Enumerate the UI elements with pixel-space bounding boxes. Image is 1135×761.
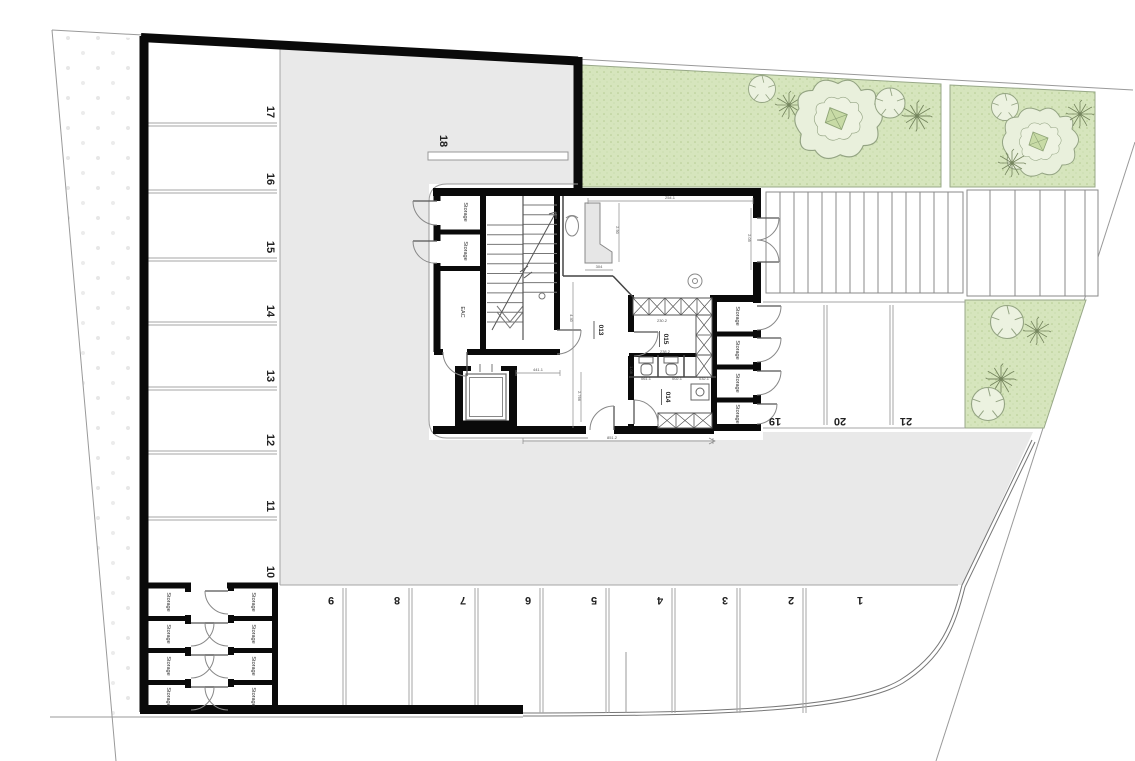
- dim-label: 2.90: [615, 226, 620, 235]
- sink: [691, 384, 709, 400]
- parking-space-number: 1: [857, 594, 863, 606]
- dim-label: 061.1: [641, 376, 652, 381]
- parking-space-number: 6: [525, 594, 531, 606]
- tree-icon: [972, 388, 1005, 421]
- dim-label: 2.05: [747, 234, 752, 243]
- storage-label: Storage: [250, 656, 256, 675]
- room-label-013: 013: [597, 325, 604, 336]
- parking-space-number: 7: [460, 594, 466, 606]
- dim-label: 032.1: [699, 376, 710, 381]
- stall-divider-lines-bottom: [280, 585, 958, 713]
- dim-label: 230.2: [657, 318, 668, 323]
- storage-block-walls: [145, 583, 278, 712]
- tree-icon: [875, 88, 905, 118]
- storage-label: Storage: [165, 656, 171, 675]
- parking-space-number: 20: [834, 415, 846, 427]
- dim-label: 441.1: [533, 367, 544, 372]
- storage-label: Storage: [734, 306, 740, 325]
- storage-label: Storage: [462, 202, 468, 221]
- parking-numbers-right: 19 20 21: [769, 415, 912, 427]
- room-label-eac: EAC: [459, 306, 465, 317]
- tree-icon: [749, 76, 776, 103]
- storage-label: Storage: [734, 373, 740, 392]
- parking-space-number: 17: [264, 106, 276, 118]
- stall-divider-lines-right: [763, 302, 965, 428]
- parking-space-number: 9: [328, 594, 334, 606]
- room-label-015: 015: [662, 334, 669, 345]
- dim-label: 2.766: [577, 391, 582, 402]
- parking-space-number: 3: [722, 594, 728, 606]
- dim-label: 1.08: [629, 366, 634, 375]
- dim-label: 238.2: [660, 349, 671, 354]
- room-label-014: 014: [664, 392, 671, 403]
- storage-label: Storage: [250, 592, 256, 611]
- parking-space-number: 10: [264, 566, 276, 578]
- tree-icon: [991, 306, 1024, 339]
- parking-space-number: 8: [394, 594, 400, 606]
- dim-label: 304: [596, 264, 603, 269]
- dim-label: 851.2: [607, 435, 618, 440]
- office-chair: [566, 216, 579, 236]
- ramp-stripes: [766, 190, 1098, 296]
- tree-icon: [992, 94, 1019, 121]
- storage-label: Storage: [165, 592, 171, 611]
- parking-space-number: 19: [769, 415, 781, 427]
- stall-18-divider-bar: [428, 152, 568, 160]
- storage-label: Storage: [165, 624, 171, 643]
- parking-numbers-bottom: 9 8 7 6 5 4 3 2 1: [328, 594, 863, 606]
- site-plan-svg: 254.1 2.05 2.90 304 4.40 441.1 2.766 851…: [0, 0, 1135, 761]
- storage-label: Storage: [165, 687, 171, 706]
- floor-plan-page: 254.1 2.05 2.90 304 4.40 441.1 2.766 851…: [0, 0, 1135, 761]
- parking-space-number: 21: [900, 415, 912, 427]
- parking-space-number: 14: [264, 305, 276, 318]
- dim-label: 254.1: [665, 195, 676, 200]
- parking-space-number: 11: [264, 500, 276, 512]
- elevator-car: [466, 374, 506, 420]
- stall-divider-lines-left: [148, 46, 280, 585]
- parking-space-number: 12: [264, 434, 276, 446]
- parking-space-number: 18: [437, 135, 449, 147]
- parking-space-number: 15: [264, 241, 276, 253]
- dim-label: 4.40: [569, 314, 574, 323]
- storage-label: Storage: [734, 340, 740, 359]
- parking-space-number: 2: [788, 594, 794, 606]
- storage-label: Storage: [462, 241, 468, 260]
- storage-label: Storage: [250, 687, 256, 706]
- parking-numbers-left: 17 16 15 14 13 12 11 10: [264, 106, 276, 578]
- parking-space-number: 5: [591, 594, 597, 606]
- dim-label: 002.1: [672, 376, 683, 381]
- storage-label: Storage: [734, 404, 740, 423]
- verge-dotted-texture: [52, 30, 140, 716]
- storage-label: Storage: [250, 624, 256, 643]
- parking-space-number: 16: [264, 173, 276, 185]
- parking-space-number: 4: [656, 594, 663, 606]
- parking-space-number: 13: [264, 370, 276, 382]
